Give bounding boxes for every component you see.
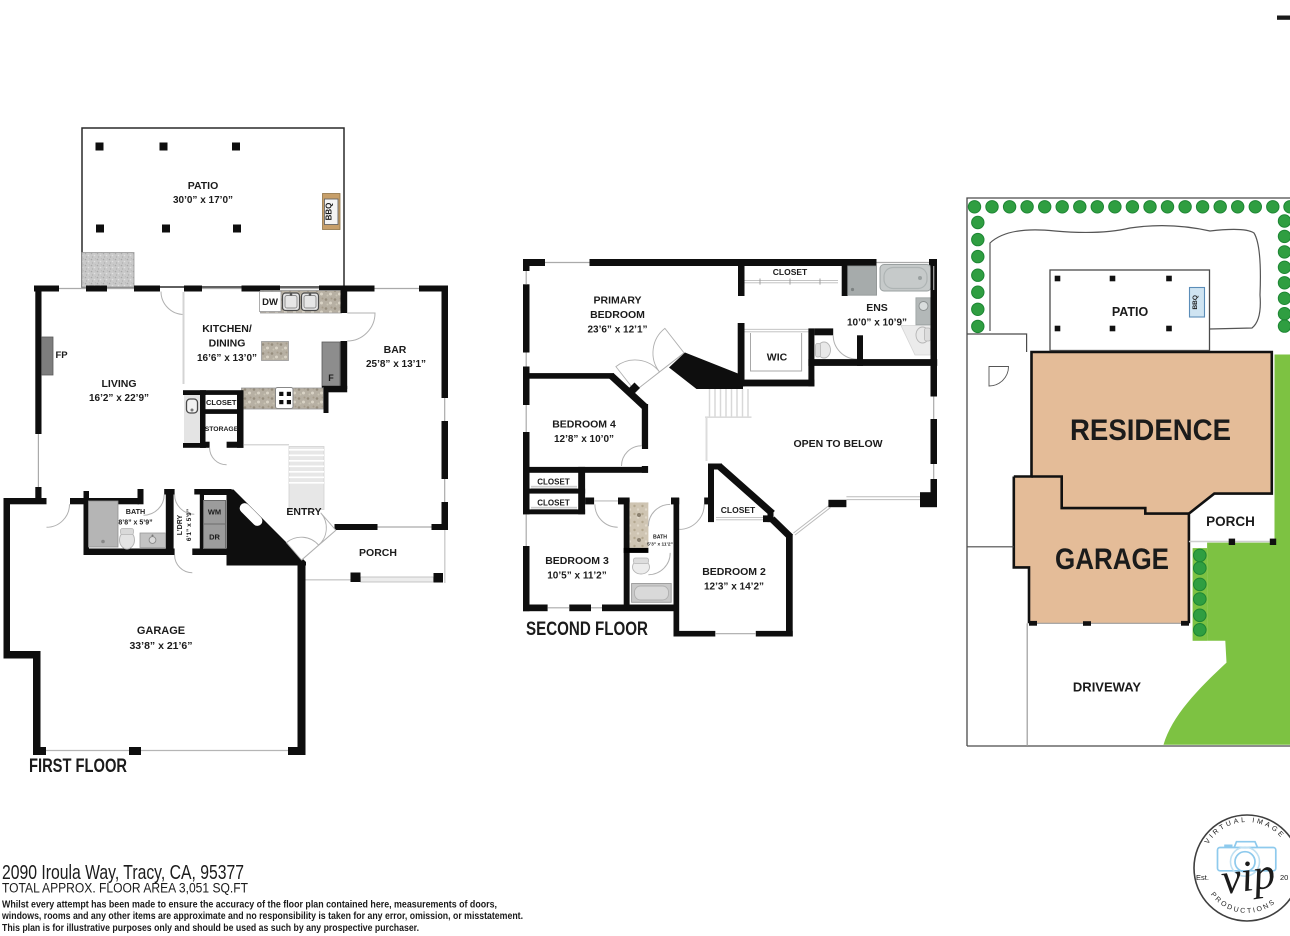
svg-text:BATH: BATH (126, 507, 145, 516)
svg-text:KITCHEN/: KITCHEN/ (202, 323, 252, 335)
svg-text:BAR: BAR (384, 344, 407, 356)
svg-text:BEDROOM 3: BEDROOM 3 (545, 555, 609, 567)
svg-text:GARAGE: GARAGE (1055, 543, 1169, 576)
svg-text:DR: DR (209, 533, 220, 542)
svg-text:25’8” x 13’1”: 25’8” x 13’1” (366, 359, 426, 370)
svg-text:BEDROOM 2: BEDROOM 2 (702, 566, 766, 578)
svg-text:CLOSET: CLOSET (537, 499, 570, 508)
svg-text:CLOSET: CLOSET (721, 505, 756, 515)
svg-text:WIC: WIC (767, 352, 788, 364)
svg-text:10’0” x 10’9”: 10’0” x 10’9” (847, 318, 907, 329)
svg-text:CLOSET: CLOSET (537, 478, 570, 487)
svg-text:ENS: ENS (866, 302, 888, 314)
svg-text:GARAGE: GARAGE (137, 625, 185, 637)
svg-text:This plan is for illustrative: This plan is for illustrative purposes o… (2, 923, 419, 934)
svg-text:WM: WM (208, 508, 221, 517)
svg-text:30’0” x 17’0”: 30’0” x 17’0” (173, 195, 233, 206)
svg-text:DINING: DINING (209, 338, 246, 350)
svg-text:F: F (328, 373, 334, 383)
svg-text:PATIO: PATIO (188, 180, 219, 192)
svg-text:33’8” x 21’6”: 33’8” x 21’6” (129, 640, 192, 652)
svg-text:RESIDENCE: RESIDENCE (1070, 414, 1231, 447)
svg-text:6’1” x 5’9”: 6’1” x 5’9” (186, 509, 193, 541)
svg-text:23’6” x 12’1”: 23’6” x 12’1” (587, 325, 647, 336)
svg-text:BBQ: BBQ (325, 203, 334, 221)
svg-text:12’3” x 14’2”: 12’3” x 14’2” (704, 582, 764, 593)
svg-text:BEDROOM 4: BEDROOM 4 (552, 419, 616, 431)
svg-text:FIRST FLOOR: FIRST FLOOR (29, 756, 127, 777)
svg-text:DRIVEWAY: DRIVEWAY (1073, 680, 1141, 695)
svg-text:BEDROOM: BEDROOM (590, 309, 645, 321)
svg-text:BATH: BATH (653, 535, 667, 541)
svg-text:PRIMARY: PRIMARY (593, 295, 641, 307)
svg-text:10’5” x 11’2”: 10’5” x 11’2” (547, 571, 607, 582)
svg-text:PORCH: PORCH (1206, 514, 1255, 529)
svg-text:LIVING: LIVING (101, 378, 136, 390)
svg-text:BBQ: BBQ (1192, 295, 1199, 309)
svg-text:20: 20 (1280, 873, 1288, 882)
svg-text:PATIO: PATIO (1112, 305, 1149, 319)
svg-text:16’6” x 13’0”: 16’6” x 13’0” (197, 353, 257, 364)
svg-text:CLOSET: CLOSET (773, 267, 808, 277)
svg-text:8’8” x 5’9”: 8’8” x 5’9” (118, 520, 152, 527)
svg-text:CLOSET: CLOSET (206, 398, 237, 407)
svg-text:Est.: Est. (1196, 873, 1209, 882)
svg-text:16’2” x 22’9”: 16’2” x 22’9” (89, 393, 149, 404)
svg-text:TOTAL APPROX. FLOOR AREA 3,051: TOTAL APPROX. FLOOR AREA 3,051 SQ.FT (2, 881, 248, 896)
svg-text:L’DRY: L’DRY (177, 514, 184, 535)
svg-text:FP: FP (56, 350, 69, 361)
svg-text:Whilst every attempt has been: Whilst every attempt has been made to en… (2, 900, 497, 911)
svg-text:SECOND FLOOR: SECOND FLOOR (526, 619, 648, 640)
svg-text:DW: DW (262, 297, 278, 308)
svg-text:windows, rooms and any other i: windows, rooms and any other items are a… (1, 911, 523, 922)
svg-text:ENTRY: ENTRY (286, 506, 321, 518)
svg-text:OPEN TO BELOW: OPEN TO BELOW (793, 438, 882, 450)
svg-text:PORCH: PORCH (359, 547, 397, 559)
svg-text:12’8” x 10’0”: 12’8” x 10’0” (554, 434, 614, 445)
svg-text:STORAGE: STORAGE (205, 426, 239, 433)
svg-text:vip: vip (1218, 848, 1278, 904)
svg-text:5’3” x 11’2”: 5’3” x 11’2” (647, 542, 673, 548)
